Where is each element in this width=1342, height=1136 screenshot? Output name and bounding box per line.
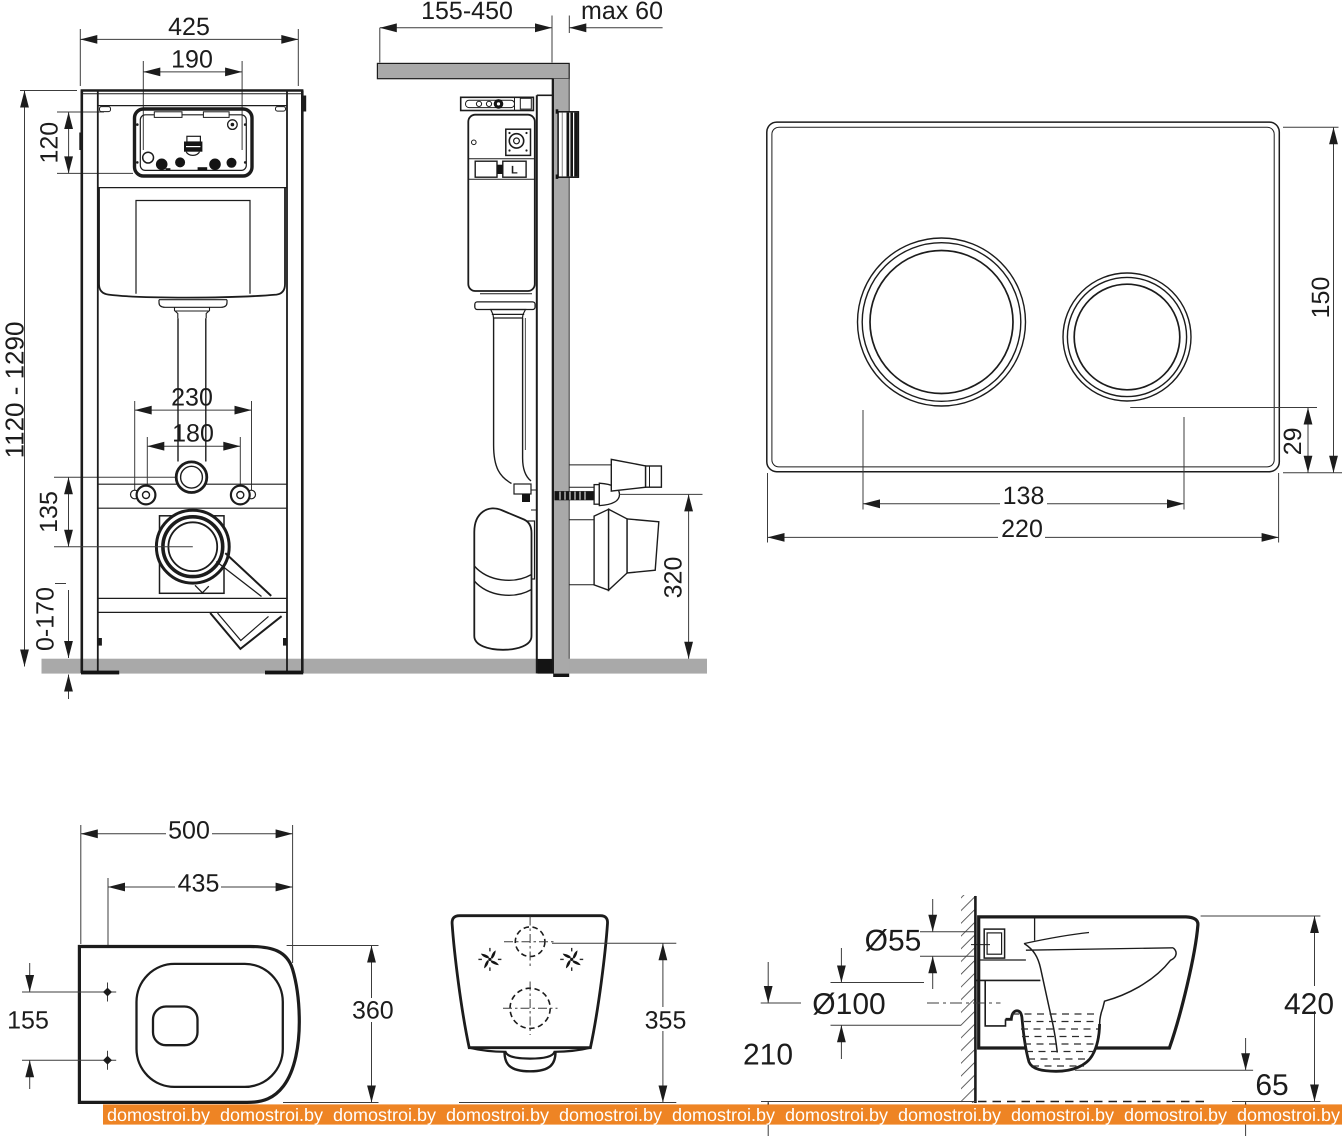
svg-text:190: 190 bbox=[171, 46, 213, 74]
svg-text:320: 320 bbox=[660, 557, 688, 599]
svg-text:domostroi.by: domostroi.by bbox=[559, 1105, 662, 1125]
svg-text:360: 360 bbox=[352, 997, 394, 1025]
svg-text:domostroi.by: domostroi.by bbox=[107, 1105, 210, 1125]
svg-text:domostroi.by: domostroi.by bbox=[1237, 1105, 1340, 1125]
svg-text:500: 500 bbox=[168, 817, 210, 845]
svg-text:425: 425 bbox=[168, 13, 210, 41]
svg-text:Ø55: Ø55 bbox=[865, 925, 922, 958]
svg-text:1120 - 1290: 1120 - 1290 bbox=[0, 322, 30, 459]
svg-text:domostroi.by: domostroi.by bbox=[785, 1105, 888, 1125]
svg-text:150: 150 bbox=[1307, 277, 1335, 319]
svg-text:135: 135 bbox=[35, 491, 63, 533]
svg-text:L: L bbox=[511, 165, 518, 177]
svg-text:120: 120 bbox=[36, 122, 64, 164]
svg-text:domostroi.by: domostroi.by bbox=[1124, 1105, 1227, 1125]
svg-text:domostroi.by: domostroi.by bbox=[898, 1105, 1001, 1125]
svg-text:29: 29 bbox=[1279, 427, 1307, 455]
svg-text:210: 210 bbox=[743, 1039, 793, 1072]
svg-text:155-450: 155-450 bbox=[421, 0, 513, 25]
svg-text:138: 138 bbox=[1003, 482, 1045, 510]
svg-text:0-170: 0-170 bbox=[32, 587, 60, 651]
svg-text:Ø100: Ø100 bbox=[812, 988, 885, 1021]
svg-text:220: 220 bbox=[1001, 515, 1043, 543]
svg-text:420: 420 bbox=[1284, 988, 1334, 1021]
svg-text:max 60: max 60 bbox=[581, 0, 663, 25]
svg-text:domostroi.by: domostroi.by bbox=[672, 1105, 775, 1125]
svg-text:355: 355 bbox=[645, 1007, 687, 1035]
svg-text:domostroi.by: domostroi.by bbox=[446, 1105, 549, 1125]
svg-text:domostroi.by: domostroi.by bbox=[333, 1105, 436, 1125]
svg-text:domostroi.by: domostroi.by bbox=[1011, 1105, 1114, 1125]
svg-text:155: 155 bbox=[7, 1007, 49, 1035]
svg-text:435: 435 bbox=[178, 870, 220, 898]
svg-text:domostroi.by: domostroi.by bbox=[220, 1105, 323, 1125]
svg-text:65: 65 bbox=[1255, 1069, 1288, 1102]
